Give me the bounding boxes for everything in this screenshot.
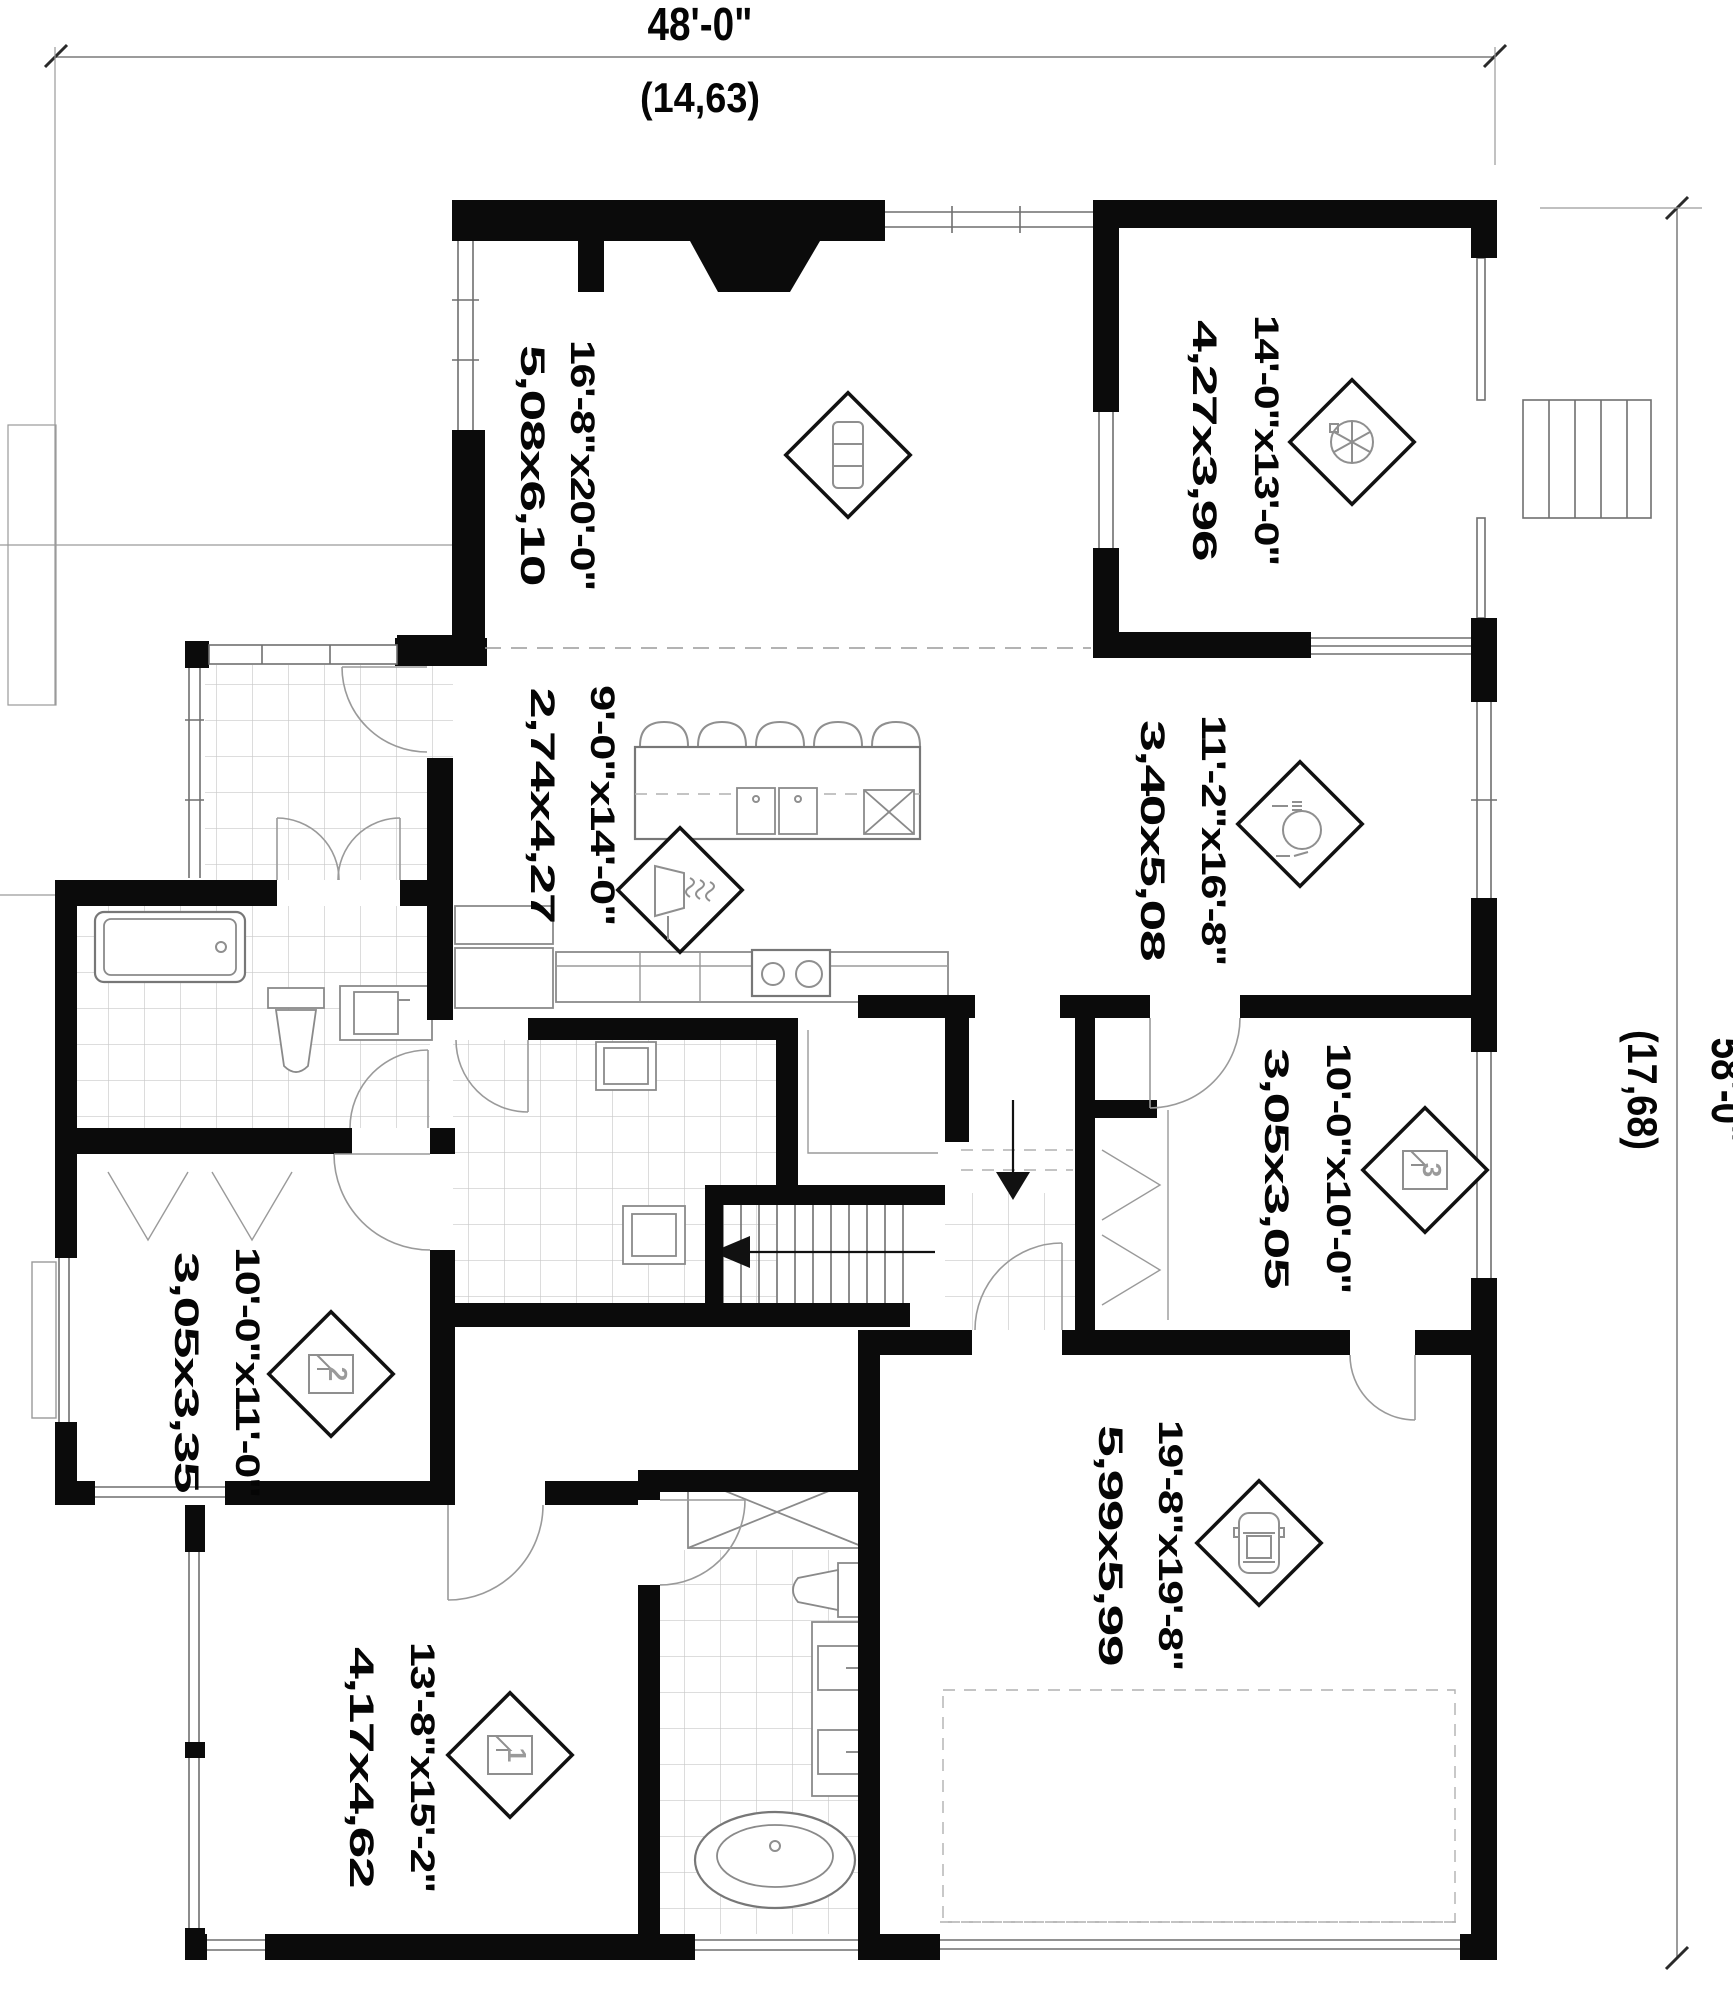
- kitchen-imperial-label: 9'-0"x14'-0": [583, 685, 621, 925]
- room-garage: 19'-8"x19'-8" 5,99x5,99: [1091, 1420, 1321, 1670]
- fireplace-stub: [578, 241, 604, 292]
- terrace-sliding-door: [1311, 638, 1471, 654]
- dining-imperial-label: 11'-2"x16'-8": [1194, 715, 1232, 965]
- garage-imperial-label: 19'-8"x19'-8": [1151, 1420, 1189, 1670]
- closet-hanger-icon: [1102, 1150, 1160, 1220]
- bedroom2-imperial-label: 10'-0"x11'-0": [228, 1247, 266, 1497]
- garage-man-door: [1350, 1355, 1415, 1420]
- railing: [1477, 258, 1485, 400]
- fireplace: [690, 241, 820, 292]
- room-bedroom3: 10'-0"x10'-0" 3,05x3,05 3: [1257, 1043, 1487, 1293]
- bedroom1-number: 1: [502, 1748, 532, 1762]
- bedroom2-metric-label: 3,05x3,35: [167, 1252, 205, 1492]
- bar-stools: [640, 722, 920, 746]
- living-metric-label: 5,08x6,10: [513, 345, 551, 585]
- living-imperial-label: 16'-8"x20'-0": [563, 340, 601, 590]
- window-sill: [32, 1262, 56, 1418]
- bedroom2-left-window: [32, 1258, 69, 1422]
- garage-diamond: [1197, 1481, 1321, 1605]
- cooktop: [752, 950, 830, 996]
- bedroom1-door: [448, 1505, 543, 1600]
- toilet-tank: [268, 988, 324, 1008]
- kitchen-diamond: [618, 828, 742, 952]
- overall-width-label: 48'-0": [648, 0, 753, 50]
- bedroom3-door: [1150, 1018, 1240, 1108]
- pantry-cabinet: [455, 948, 553, 1008]
- floor-plan-page: { "plan": { "overall": { "width_label": …: [0, 0, 1733, 2000]
- bedroom1-metric-label: 4,17x4,62: [342, 1647, 380, 1887]
- washer-inner: [632, 1214, 676, 1256]
- dining-metric-label: 3,40x5,08: [1133, 720, 1171, 960]
- island-sink-left: [737, 788, 775, 834]
- island-sink-right: [779, 788, 817, 834]
- terrace-imperial-label: 14'-0"x13'-0": [1247, 315, 1285, 565]
- entry-arrow: [961, 1100, 1073, 1200]
- garage-door: [940, 1922, 1460, 1949]
- room-terrace: 14'-0"x13'-0" 4,27x3,96: [1185, 315, 1414, 565]
- bedroom3-metric-label: 3,05x3,05: [1257, 1048, 1295, 1288]
- freestanding-tub-inner: [717, 1825, 833, 1887]
- bathroom-bottom-window: [695, 1940, 858, 1950]
- bedroom3-number: 3: [1417, 1163, 1447, 1177]
- planter-outline: [8, 425, 56, 705]
- walk-in-shelving: [808, 1030, 938, 1153]
- room-bedroom1: 13'-8"x15'-2" 4,17x4,62 1: [342, 1642, 572, 1892]
- bedroom2-number: 2: [323, 1367, 353, 1381]
- entry-steps: [1477, 258, 1651, 618]
- garage-metric-label: 5,99x5,99: [1091, 1425, 1129, 1665]
- overall-height-metric: (17,68): [1619, 1030, 1666, 1150]
- bedroom1-left-windows: [189, 1552, 199, 1928]
- porch-tile-floor: [205, 665, 453, 880]
- floor-plan-drawing: 48'-0" (14,63) 58'-0" (17,68) 16'-8"x20'…: [0, 0, 1733, 2000]
- hall-tile-floor: [945, 1193, 1075, 1330]
- dishwasher-icon: [864, 790, 914, 834]
- bedroom2-door: [334, 1154, 430, 1250]
- closet-hanger-icon: [1102, 1235, 1160, 1305]
- living-left-window: [452, 241, 479, 430]
- bedroom1-imperial-label: 13'-8"x15'-2": [403, 1642, 441, 1892]
- room-dining: 11'-2"x16'-8" 3,40x5,08: [1133, 715, 1362, 965]
- bedroom1-bottom-window: [207, 1940, 265, 1950]
- living-diamond: [786, 393, 910, 517]
- laundry-sink-inner: [604, 1048, 648, 1084]
- porch-top-window: [209, 645, 397, 664]
- tiled-floors: [77, 665, 1075, 1934]
- railing: [1477, 518, 1485, 618]
- dining-diamond: [1238, 762, 1362, 886]
- dining-right-window: [1471, 702, 1497, 898]
- terrace-left-window: [1099, 412, 1113, 548]
- terrace-metric-label: 4,27x3,96: [1185, 320, 1223, 560]
- porch-left-window: [185, 668, 204, 878]
- closet-hanger-icon: [212, 1172, 292, 1240]
- garage-door-swing-zone: [943, 1690, 1455, 1922]
- vanity-sink: [354, 992, 398, 1034]
- living-top-window: [885, 200, 1093, 241]
- toilet-tank: [838, 1563, 860, 1617]
- overall-width-metric: (14,63): [640, 74, 760, 121]
- kitchen-metric-label: 2,74x4,27: [523, 688, 561, 923]
- room-living: 16'-8"x20'-0" 5,08x6,10: [513, 340, 910, 590]
- closet-hanger-icon: [108, 1172, 188, 1240]
- room-bedroom2: 10'-0"x11'-0" 3,05x3,35 2: [167, 1247, 393, 1497]
- overall-height-label: 58'-0": [1702, 1038, 1733, 1143]
- bedroom3-imperial-label: 10'-0"x10'-0": [1319, 1043, 1357, 1293]
